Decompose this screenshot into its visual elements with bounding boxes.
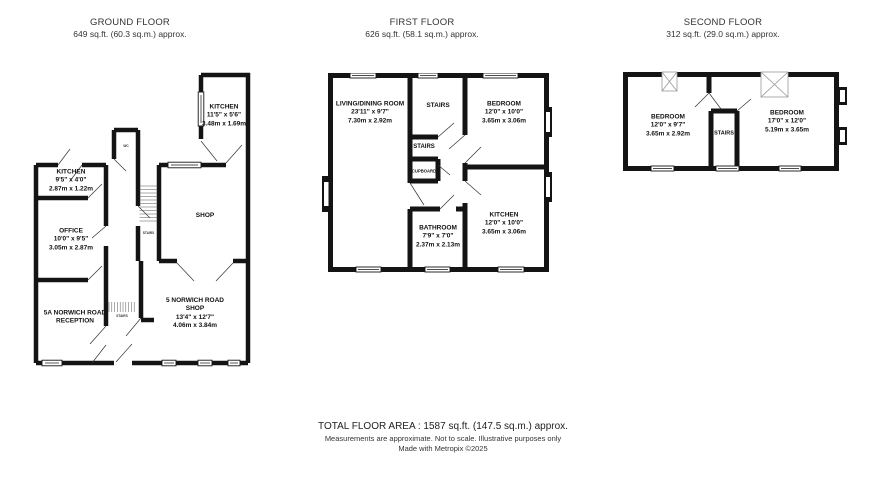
room-label-ground-entrance-stairs: STAIRS: [116, 315, 127, 319]
ground-stairs-hatch: [109, 186, 158, 312]
first-floor-title: FIRST FLOOR: [312, 17, 532, 28]
room-label-bedroom-left: BEDROOM 12'0" x 9'7" 3.65m x 2.92m: [646, 113, 690, 138]
ground-floor-area: 649 sq.ft. (60.3 sq.m.) approx.: [20, 29, 240, 39]
first-floor-area: 626 sq.ft. (58.1 sq.m.) approx.: [312, 29, 532, 39]
room-label-shop5: 5 NORWICH ROAD SHOP 13'4" x 12'7" 4.06m …: [166, 297, 224, 331]
first-floor-plan: LIVING/DINING ROOM 23'11" x 9'7" 7.30m x…: [322, 73, 552, 275]
room-label-bedroom-right: BEDROOM 17'0" x 12'0" 5.19m x 3.65m: [765, 109, 809, 134]
total-floor-area: TOTAL FLOOR AREA : 1587 sq.ft. (147.5 sq…: [0, 421, 886, 432]
made-with-text: Made with Metropix ©2025: [0, 444, 886, 453]
second-floor-header: SECOND FLOOR 312 sq.ft. (29.0 sq.m.) app…: [613, 17, 833, 39]
room-label-shop: SHOP: [196, 212, 214, 220]
second-floor-area: 312 sq.ft. (29.0 sq.m.) approx.: [613, 29, 833, 39]
room-label-ground-stairs: STAIRS: [143, 232, 154, 236]
second-dormer-tabs: [838, 87, 847, 145]
first-floor-header: FIRST FLOOR 626 sq.ft. (58.1 sq.m.) appr…: [312, 17, 532, 39]
room-label-stairs-second: STAIRS: [714, 130, 734, 137]
second-floor-title: SECOND FLOOR: [613, 17, 833, 28]
room-label-wc: WC: [123, 145, 128, 149]
footer: TOTAL FLOOR AREA : 1587 sq.ft. (147.5 sq…: [0, 421, 886, 453]
ground-floor-title: GROUND FLOOR: [20, 17, 240, 28]
second-floor-plan: BEDROOM 12'0" x 9'7" 3.65m x 2.92m STAIR…: [621, 71, 856, 174]
room-label-stairs-mid: STAIRS: [413, 144, 435, 152]
ground-floor-header: GROUND FLOOR 649 sq.ft. (60.3 sq.m.) app…: [20, 17, 240, 39]
room-label-stairs-top: STAIRS: [426, 102, 449, 110]
room-label-bathroom: BATHROOM 7'9" x 7'0" 2.37m x 2.13m: [416, 224, 460, 249]
room-label-bedroom-first: BEDROOM 12'0" x 10'0" 3.65m x 3.06m: [482, 100, 526, 125]
room-label-cupboard: CUPBOARD: [412, 168, 436, 173]
second-door-swings: [695, 93, 751, 111]
room-label-kitchen-rear: KITCHEN 11'5" x 5'6" 3.48m x 1.69m: [202, 103, 246, 128]
floorplan-page: { "colors": { "wall": "#141414", "text":…: [0, 0, 886, 478]
room-label-living: LIVING/DINING ROOM 23'11" x 9'7" 7.30m x…: [336, 100, 404, 125]
disclaimer-text: Measurements are approximate. Not to sca…: [0, 434, 886, 443]
room-label-kitchen-first: KITCHEN 12'0" x 10'0" 3.65m x 3.06m: [482, 211, 526, 236]
room-label-office: OFFICE 10'0" x 9'5" 3.05m x 2.87m: [49, 227, 93, 252]
room-label-kitchen-left: KITCHEN 9'5" x 4'0" 2.87m x 1.22m: [49, 168, 93, 193]
ground-floor-plan: KITCHEN 11'5" x 5'6" 3.48m x 1.69m KITCH…: [30, 66, 270, 376]
room-label-reception: 5A NORWICH ROAD RECEPTION: [44, 310, 106, 327]
